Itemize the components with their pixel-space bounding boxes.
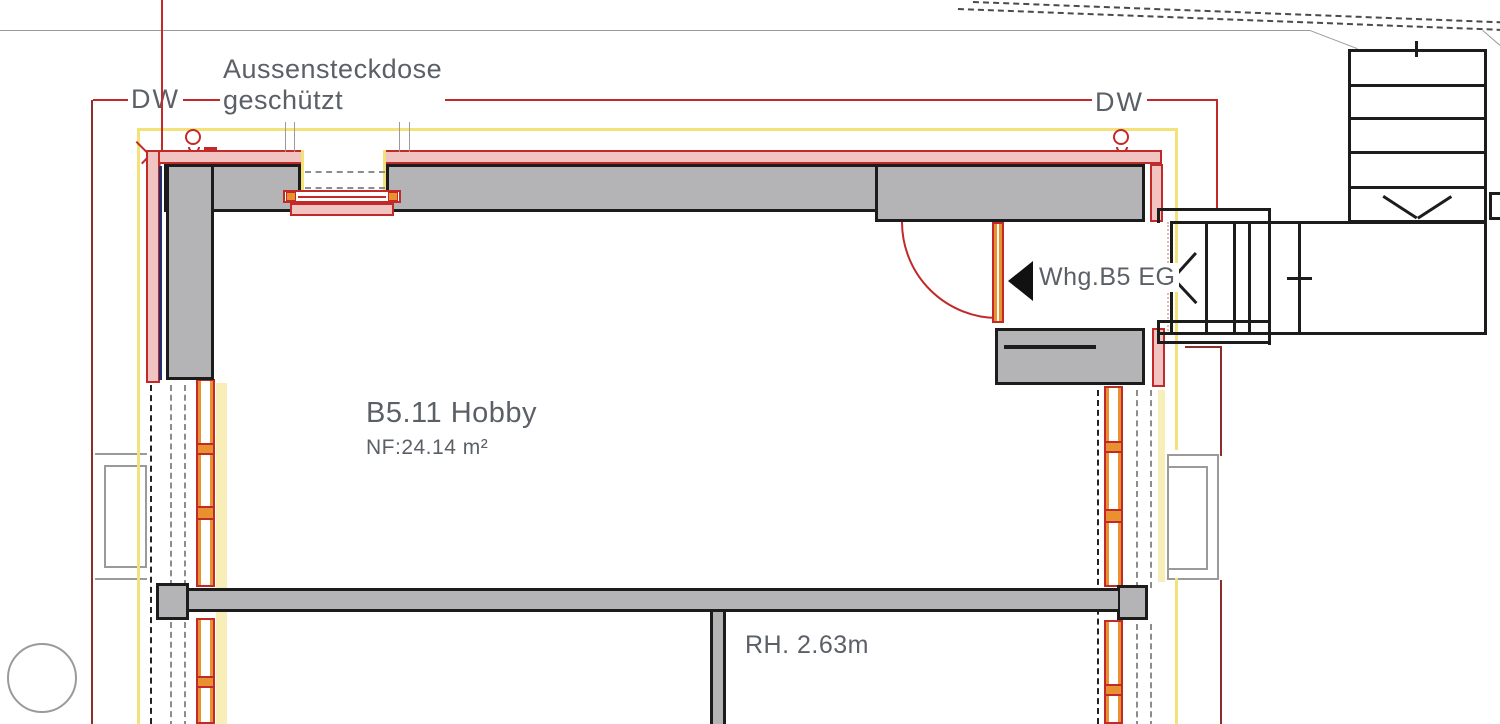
window-frame-left-lower bbox=[196, 618, 215, 724]
window-sill-line bbox=[298, 196, 386, 198]
stair-stringer-line bbox=[1157, 320, 1160, 343]
light-shaft-right-inner bbox=[1167, 466, 1208, 570]
outer-finish-band-right bbox=[1158, 390, 1165, 582]
stair-step bbox=[1248, 221, 1251, 334]
window-sill-insulation bbox=[290, 203, 394, 216]
stair-stringer-line bbox=[1157, 208, 1160, 223]
glazing-line bbox=[1150, 390, 1152, 588]
glazing-line bbox=[1136, 390, 1138, 588]
stair-step bbox=[1348, 186, 1487, 189]
wall-pier-left bbox=[156, 583, 189, 620]
facade-line-left bbox=[91, 100, 93, 724]
door-leaf bbox=[992, 222, 1004, 323]
stair-upper-flight bbox=[1348, 49, 1487, 223]
window-tick bbox=[294, 122, 295, 152]
window-frame-right-upper bbox=[1104, 386, 1123, 587]
glazing-line bbox=[170, 385, 172, 586]
glazing-line-top-window bbox=[305, 187, 385, 189]
glazing-line bbox=[170, 622, 172, 724]
window-tick bbox=[399, 122, 400, 152]
window-sill-end-right bbox=[388, 192, 398, 201]
corridor-wall-lower bbox=[995, 328, 1145, 385]
stair-stringer-line bbox=[1157, 320, 1270, 323]
stair-stringer-line bbox=[1157, 341, 1270, 344]
glazing-line-top-window bbox=[305, 171, 385, 173]
hidden-wall-edge-right bbox=[1097, 390, 1099, 724]
stair-landing-right-edge bbox=[1484, 221, 1487, 334]
site-line bbox=[0, 30, 1310, 31]
glazing-line bbox=[184, 622, 186, 724]
stair-step bbox=[1268, 208, 1271, 345]
downpipe-symbol-right-icon bbox=[1113, 129, 1129, 145]
downpipe-label-left: DW bbox=[128, 84, 183, 115]
interior-wall-vertical bbox=[710, 612, 726, 724]
stair-step bbox=[1348, 117, 1487, 120]
glazing-line bbox=[1150, 624, 1152, 724]
downpipe-riser-line-left bbox=[161, 0, 163, 154]
outdoor-socket-label-line1: Aussensteckdose bbox=[223, 54, 442, 85]
insulation-band-top bbox=[146, 150, 1162, 164]
light-shaft-left bbox=[104, 465, 147, 568]
stair-start-tick bbox=[1415, 41, 1418, 57]
downpipe-label-right: DW bbox=[1092, 87, 1147, 118]
site-line-diagonal-right bbox=[1482, 30, 1500, 46]
window-transom bbox=[196, 506, 215, 520]
entry-direction-arrow-icon bbox=[1008, 261, 1033, 301]
exterior-wall-top-middle bbox=[386, 164, 878, 212]
terrace-line-right-upper bbox=[1220, 346, 1222, 456]
terrace-line-right-top bbox=[1185, 346, 1222, 348]
entry-label: Whg.B5 EG bbox=[1036, 263, 1179, 292]
vapor-barrier-line bbox=[159, 166, 162, 380]
window-sill-end-left bbox=[286, 192, 296, 201]
floor-plan: DW Aussensteckdose geschützt DW bbox=[0, 0, 1500, 724]
outdoor-socket-label-line2: geschützt bbox=[223, 85, 442, 116]
window-transom bbox=[196, 443, 215, 455]
exterior-wall-left-upper bbox=[166, 164, 214, 380]
downpipe-riser-line-right bbox=[1216, 100, 1218, 211]
tree-symbol bbox=[7, 643, 77, 713]
terrace-line-right-lower bbox=[1220, 580, 1222, 724]
insulation-band-left bbox=[146, 150, 160, 383]
window-tick bbox=[409, 122, 410, 152]
window-transom bbox=[1104, 441, 1123, 453]
exterior-wall-top-right bbox=[875, 164, 1145, 222]
site-line-diagonal-left bbox=[1310, 30, 1358, 49]
window-transom bbox=[1104, 509, 1123, 523]
glazing-line bbox=[1136, 624, 1138, 724]
stair-step bbox=[1205, 221, 1208, 334]
downpipe-symbol-left-icon bbox=[185, 129, 201, 145]
room-area-label: NF:24.14 m² bbox=[363, 436, 491, 460]
stair-step bbox=[1348, 151, 1487, 154]
hidden-wall-edge-left bbox=[150, 385, 152, 724]
window-frame-right-lower bbox=[1104, 620, 1123, 724]
insulation-line-left bbox=[137, 128, 140, 724]
inner-finish-band-left bbox=[216, 383, 227, 724]
glazing-line bbox=[184, 385, 186, 586]
stair-step bbox=[1233, 221, 1236, 334]
window-transom bbox=[1104, 684, 1123, 696]
window-frame-left-upper bbox=[196, 379, 215, 587]
window-transom bbox=[196, 676, 215, 688]
stair-hall-top-edge bbox=[1172, 221, 1487, 224]
room-name-label: B5.11 Hobby bbox=[363, 397, 540, 430]
window-tick bbox=[285, 122, 286, 152]
wall-pier-right bbox=[1117, 585, 1148, 620]
insulation-line-right-lower bbox=[1175, 578, 1178, 724]
room-height-label: RH. 2.63m bbox=[742, 631, 872, 660]
stair-step bbox=[1348, 84, 1487, 87]
interior-wall-horizontal bbox=[189, 588, 1118, 612]
outdoor-socket-label: Aussensteckdose geschützt bbox=[220, 54, 445, 116]
stair-side-box bbox=[1489, 192, 1500, 220]
stair-cross-tick bbox=[1287, 277, 1312, 280]
stair-stringer-line bbox=[1157, 208, 1270, 211]
corridor-wall-slot bbox=[1004, 345, 1096, 349]
